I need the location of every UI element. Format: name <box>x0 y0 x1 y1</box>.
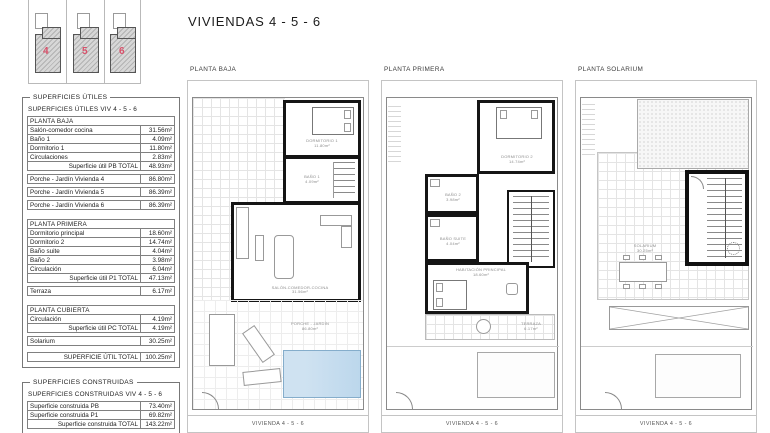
grand-total-label: SUPERFICIE ÚTIL TOTAL <box>28 353 141 362</box>
solarium-table: Solarium30.25m² <box>27 336 175 346</box>
room-label: PORCHE - JARDÍN86.80m² <box>265 322 355 331</box>
surface-value: 73.40m² <box>141 402 175 411</box>
page-title: VIVIENDAS 4 - 5 - 6 <box>188 14 321 29</box>
neighbor-stairs-ghost <box>388 106 401 162</box>
surface-label: Superficie construida PB <box>28 402 141 411</box>
pillow-icon <box>344 110 351 119</box>
neighbor-stairs-ghost <box>582 104 595 156</box>
surface-label: Porche - Jardín Vivienda 6 <box>28 201 141 210</box>
ground-outline-divider <box>581 346 753 347</box>
room-label: TERRAZA6.17m² <box>510 322 552 331</box>
dining-table-icon <box>619 262 667 282</box>
room-label: BAÑO 23.98m² <box>432 193 474 202</box>
table-row: Dormitorio 214.74m² <box>28 238 175 247</box>
sink-icon <box>430 179 440 187</box>
sink-icon <box>430 219 440 227</box>
outdoor-table-icon <box>209 314 235 366</box>
table-header-row: PLANTA CUBIERTA <box>28 306 175 315</box>
plan-footer-label: VIVIENDA 4 - 5 - 6 <box>382 415 562 432</box>
table-row: Superficie construida PB73.40m² <box>28 402 175 411</box>
room-bano-1: BAÑO 14.09m² <box>283 156 361 204</box>
pool-outline-ghost <box>655 354 741 398</box>
surface-label: Dormitorio 2 <box>28 238 141 247</box>
useful-surfaces-subtitle: SUPERFICIES ÚTILES VIV 4 - 5 - 6 <box>28 106 174 113</box>
room-label: BAÑO SUITE4.04m² <box>432 237 474 246</box>
pillow-icon <box>436 283 443 292</box>
surface-label: Circulación <box>28 265 141 274</box>
armchair-icon <box>506 283 518 295</box>
surface-value: 86.39m² <box>141 188 175 197</box>
surface-label: Circulaciones <box>28 153 141 162</box>
swimming-pool <box>283 350 361 398</box>
plant-icon <box>727 242 740 255</box>
surface-value: 6.04m² <box>141 265 175 274</box>
surface-value: 30.25m² <box>141 337 175 346</box>
building-footprint-4-step <box>42 27 61 39</box>
surface-label: Superficie construida P1 <box>28 411 141 420</box>
bed-icon <box>496 107 542 139</box>
plan-sheet: VIVIENDAS 4 - 5 - 6 4 5 6 SUPERFICIES ÚT… <box>0 0 770 433</box>
surface-tables-column: SUPERFICIES ÚTILES SUPERFICIES ÚTILES VI… <box>22 97 180 433</box>
surface-value: 4.09m² <box>141 135 175 144</box>
plot-number-5: 5 <box>82 46 88 57</box>
plan-footer-label: VIVIENDA 4 - 5 - 6 <box>576 415 756 432</box>
chair-icon <box>623 255 630 260</box>
plan-panel-planta-primera: DORMITORIO 214.74m² BAÑO 23.98m² BAÑO SU… <box>381 80 563 433</box>
table-row: Baño suite4.04m² <box>28 247 175 256</box>
surface-label: Baño 1 <box>28 135 141 144</box>
total-value: 143.22m² <box>141 420 175 429</box>
room-dormitorio-2: DORMITORIO 214.74m² <box>477 100 555 174</box>
surface-value: 11.80m² <box>141 144 175 153</box>
porche-table-5: Porche - Jardín Vivienda 586.39m² <box>27 187 175 197</box>
site-key-plan: 4 5 6 <box>28 0 142 88</box>
table-row: Salón-comedor cocina31.56m² <box>28 126 175 135</box>
surface-value: 4.04m² <box>141 247 175 256</box>
built-surfaces-title: SUPERFICIES CONSTRUIDAS <box>30 379 137 386</box>
table-total-row: Superficie útil P1 TOTAL47.13m² <box>28 274 175 283</box>
planta-baja-header: PLANTA BAJA <box>28 117 175 126</box>
table-total-row: SUPERFICIE ÚTIL TOTAL100.25m² <box>28 353 175 362</box>
kitchen-counter-icon <box>236 207 249 259</box>
pillow-icon <box>500 110 507 119</box>
room-dormitorio-1: DORMITORIO 111.80m² <box>283 100 361 158</box>
surface-label: Solarium <box>28 337 141 346</box>
table-row: Circulación6.04m² <box>28 265 175 274</box>
room-label: DORMITORIO 111.80m² <box>290 139 354 148</box>
planta-cubierta-header: PLANTA CUBIERTA <box>28 306 175 315</box>
chair-icon <box>623 284 630 289</box>
plan-panel-planta-solarium: SOLARIUM30.25m² VIVIENDA 4 - 5 - 6 <box>575 80 757 433</box>
room-label: SALÓN-COMEDOR-COCINA31.56m² <box>262 286 338 295</box>
surface-label: Salón-comedor cocina <box>28 126 141 135</box>
pergola-cross-icon <box>610 307 748 329</box>
room-habitacion-principal: HABITACIÓN PRINCIPAL18.60m² <box>425 262 529 314</box>
total-label: Superficie construida TOTAL <box>28 420 141 429</box>
surface-label: Baño suite <box>28 247 141 256</box>
table-row: Baño 23.98m² <box>28 256 175 265</box>
planta-primera-table: PLANTA PRIMERA Dormitorio principal18.60… <box>27 219 175 283</box>
table-row: Circulación4.19m² <box>28 315 175 324</box>
surface-value: 6.17m² <box>141 287 175 296</box>
chair-icon <box>655 284 662 289</box>
dining-table-icon <box>274 235 294 279</box>
surface-label: Dormitorio 1 <box>28 144 141 153</box>
surface-label: Dormitorio principal <box>28 229 141 238</box>
terrace-area: TERRAZA6.17m² <box>425 314 555 340</box>
useful-surfaces-group: SUPERFICIES ÚTILES SUPERFICIES ÚTILES VI… <box>22 97 180 368</box>
table-header-row: PLANTA BAJA <box>28 117 175 126</box>
table-row: Terraza6.17m² <box>28 287 175 296</box>
round-table-icon <box>476 319 491 334</box>
total-value: 48.93m² <box>141 162 175 171</box>
plan-title-planta-baja: PLANTA BAJA <box>190 66 236 73</box>
stairwell <box>507 190 555 268</box>
chair-icon <box>639 255 646 260</box>
built-surfaces-table: Superficie construida PB73.40m² Superfic… <box>27 401 175 429</box>
planta-cubierta-table: PLANTA CUBIERTA Circulación4.19m² Superf… <box>27 305 175 333</box>
stairs-icon <box>333 162 355 198</box>
useful-grand-total-table: SUPERFICIE ÚTIL TOTAL100.25m² <box>27 352 175 362</box>
table-row: Porche - Jardín Vivienda 486.80m² <box>28 175 175 184</box>
room-label: BAÑO 14.09m² <box>290 175 334 184</box>
plan-title-planta-primera: PLANTA PRIMERA <box>384 66 445 73</box>
gravel-roof <box>637 99 749 169</box>
bed-icon <box>433 280 467 310</box>
pergola <box>609 306 749 330</box>
table-row: Superficie construida P169.82m² <box>28 411 175 420</box>
porche-table-6: Porche - Jardín Vivienda 686.39m² <box>27 200 175 210</box>
stairs-rail <box>531 196 532 262</box>
table-total-row: Superficie útil PC TOTAL4.19m² <box>28 324 175 333</box>
terraza-table: Terraza6.17m² <box>27 286 175 296</box>
plan-panel-planta-baja: DORMITORIO 111.80m² BAÑO 14.09m² SALÓN-C… <box>187 80 369 433</box>
sofa-icon <box>341 226 352 248</box>
plan-footer-label: VIVIENDA 4 - 5 - 6 <box>188 415 368 432</box>
table-row: Dormitorio 111.80m² <box>28 144 175 153</box>
surface-value: 3.98m² <box>141 256 175 265</box>
surface-label: Porche - Jardín Vivienda 5 <box>28 188 141 197</box>
room-label: HABITACIÓN PRINCIPAL18.60m² <box>436 268 526 277</box>
table-total-row: Superficie construida TOTAL143.22m² <box>28 420 175 429</box>
bed-icon <box>312 107 354 135</box>
door-icon <box>691 176 704 189</box>
plan-title-planta-solarium: PLANTA SOLARIUM <box>578 66 643 73</box>
surface-value: 4.19m² <box>141 315 175 324</box>
stairwell <box>685 170 749 266</box>
kitchen-island-icon <box>255 235 264 261</box>
planta-baja-table: PLANTA BAJA Salón-comedor cocina31.56m² … <box>27 116 175 171</box>
planta-primera-header: PLANTA PRIMERA <box>28 220 175 229</box>
room-label: SOLARIUM30.25m² <box>615 244 675 253</box>
built-surfaces-group: SUPERFICIES CONSTRUIDAS SUPERFICIES CONS… <box>22 382 180 433</box>
surface-value: 86.80m² <box>141 175 175 184</box>
grand-total-value: 100.25m² <box>141 353 175 362</box>
ground-outline-divider <box>387 346 559 347</box>
surface-label: Porche - Jardín Vivienda 4 <box>28 175 141 184</box>
stairs-rail <box>725 178 726 258</box>
useful-surfaces-title: SUPERFICIES ÚTILES <box>30 94 110 101</box>
chair-icon <box>655 255 662 260</box>
pillow-icon <box>344 123 351 132</box>
total-value: 47.13m² <box>141 274 175 283</box>
table-total-row: Superficie útil PB TOTAL48.93m² <box>28 162 175 171</box>
chair-icon <box>639 284 646 289</box>
plot-drawing-p1: DORMITORIO 214.74m² BAÑO 23.98m² BAÑO SU… <box>386 97 558 410</box>
table-header-row: PLANTA PRIMERA <box>28 220 175 229</box>
surface-value: 2.83m² <box>141 153 175 162</box>
surface-value: 14.74m² <box>141 238 175 247</box>
plot-number-4: 4 <box>43 46 49 57</box>
surface-value: 69.82m² <box>141 411 175 420</box>
porche-table-4: Porche - Jardín Vivienda 486.80m² <box>27 174 175 184</box>
room-bano-suite: BAÑO SUITE4.04m² <box>425 214 479 262</box>
room-bano-2: BAÑO 23.98m² <box>425 174 479 214</box>
total-label: Superficie útil PC TOTAL <box>28 324 141 333</box>
pillow-icon <box>531 110 538 119</box>
plot-drawing-pb: DORMITORIO 111.80m² BAÑO 14.09m² SALÓN-C… <box>192 97 364 410</box>
sofa-icon <box>320 215 352 226</box>
surface-value: 86.39m² <box>141 201 175 210</box>
table-row: Baño 14.09m² <box>28 135 175 144</box>
surface-label: Circulación <box>28 315 141 324</box>
table-row: Porche - Jardín Vivienda 586.39m² <box>28 188 175 197</box>
table-row: Dormitorio principal18.60m² <box>28 229 175 238</box>
surface-value: 31.56m² <box>141 126 175 135</box>
room-label: DORMITORIO 214.74m² <box>486 155 548 164</box>
surface-label: Baño 2 <box>28 256 141 265</box>
table-row: Circulaciones2.83m² <box>28 153 175 162</box>
entry-door-icon <box>605 392 622 409</box>
total-value: 4.19m² <box>141 324 175 333</box>
pool-outline-ghost <box>477 352 555 398</box>
plot-drawing-solarium: SOLARIUM30.25m² <box>580 97 752 410</box>
surface-value: 18.60m² <box>141 229 175 238</box>
total-label: Superficie útil P1 TOTAL <box>28 274 141 283</box>
room-salon-comedor-cocina: SALÓN-COMEDOR-COCINA31.56m² <box>231 202 361 302</box>
building-footprint-6-step <box>117 27 136 39</box>
building-footprint-5-step <box>80 27 99 39</box>
pillow-icon <box>436 298 443 307</box>
entry-door-icon <box>396 392 413 409</box>
table-row: Porche - Jardín Vivienda 686.39m² <box>28 201 175 210</box>
built-surfaces-subtitle: SUPERFICIES CONSTRUIDAS VIV 4 - 5 - 6 <box>28 391 174 398</box>
total-label: Superficie útil PB TOTAL <box>28 162 141 171</box>
table-row: Solarium30.25m² <box>28 337 175 346</box>
surface-label: Terraza <box>28 287 141 296</box>
plot-number-6: 6 <box>119 46 125 57</box>
